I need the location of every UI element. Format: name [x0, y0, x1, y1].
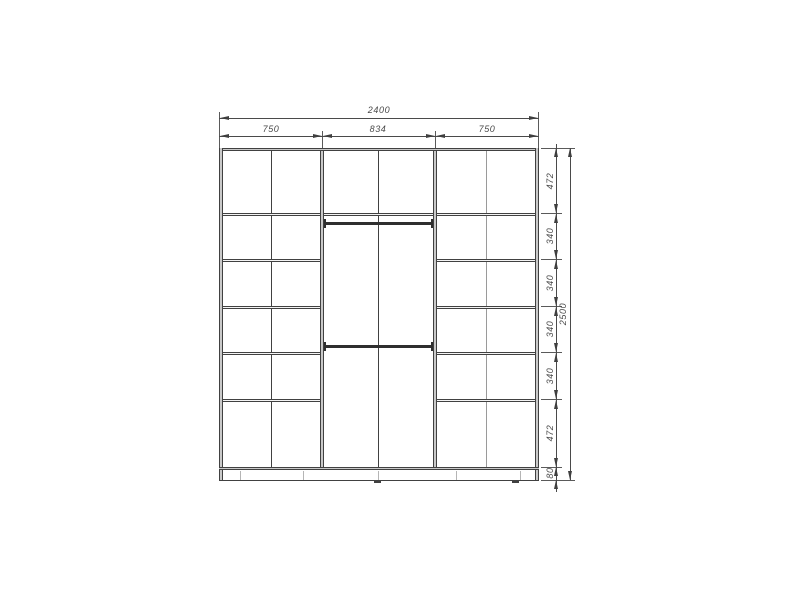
dim-label-height-6: 472 — [545, 425, 555, 442]
partition-left — [320, 151, 324, 467]
extension-line — [541, 399, 562, 400]
plinth-foot-tick — [240, 471, 241, 480]
shelf-left-1 — [223, 213, 320, 216]
dimension-arrow — [554, 214, 558, 223]
shelf-left-2 — [223, 259, 320, 262]
extension-line — [541, 213, 562, 214]
dimension-arrow — [554, 148, 558, 157]
plinth-foot-tick — [378, 471, 379, 480]
dimension-arrow — [554, 480, 558, 489]
extension-line — [541, 480, 575, 481]
hanging-rod-upper-bracket-right — [431, 219, 433, 228]
dimension-line-height-chain — [556, 144, 557, 492]
dimension-arrow — [436, 134, 445, 138]
shelf-right-1 — [437, 213, 535, 216]
dim-label-width-left: 750 — [263, 124, 280, 134]
dimension-arrow — [568, 471, 572, 480]
bottom-panel — [219, 467, 539, 470]
dim-label-height-total: 2500 — [558, 303, 568, 325]
dimension-arrow — [554, 390, 558, 399]
hanging-rod-upper-bracket-left — [324, 219, 326, 228]
divider-left-column — [271, 151, 272, 467]
shelf-middle-top — [324, 213, 433, 216]
hanging-rod-lower — [326, 345, 431, 348]
floor-mark — [512, 481, 519, 483]
dimension-arrow — [426, 134, 435, 138]
dimension-arrow — [554, 458, 558, 467]
dim-label-height-4: 340 — [545, 321, 555, 338]
dimension-line-height-total — [570, 148, 571, 480]
shelf-left-5 — [223, 399, 320, 402]
dimension-arrow — [554, 353, 558, 362]
dimension-arrow — [529, 116, 538, 120]
dim-label-width-middle: 834 — [370, 124, 387, 134]
partition-right — [433, 151, 437, 467]
hanging-rod-lower-bracket-right — [431, 342, 433, 351]
plinth-foot-tick — [303, 471, 304, 480]
dim-label-height-3: 340 — [545, 275, 555, 292]
technical-drawing-sheet: 2400 750 834 750 472 340 340 340 340 472… — [0, 0, 800, 600]
shelf-right-2 — [437, 259, 535, 262]
dimension-line-width-total — [219, 118, 539, 119]
dimension-arrow — [554, 400, 558, 409]
dim-label-height-2: 340 — [545, 228, 555, 245]
side-panel-right — [535, 148, 539, 481]
dimension-arrow — [220, 116, 229, 120]
dimension-arrow — [554, 204, 558, 213]
dim-label-height-5: 340 — [545, 368, 555, 385]
plinth-foot-tick — [456, 471, 457, 480]
dimension-arrow — [554, 250, 558, 259]
hanging-rod-lower-bracket-left — [324, 342, 326, 351]
dimension-arrow — [568, 148, 572, 157]
dimension-arrow — [313, 134, 322, 138]
dimension-arrow — [554, 343, 558, 352]
dimension-arrow — [220, 134, 229, 138]
shelf-right-3 — [437, 306, 535, 309]
divider-middle-column — [378, 151, 379, 467]
dimension-arrow — [529, 134, 538, 138]
shelf-left-4 — [223, 352, 320, 355]
divider-right-column — [486, 151, 487, 467]
top-panel — [219, 148, 539, 151]
shelf-right-4 — [437, 352, 535, 355]
shelf-right-5 — [437, 399, 535, 402]
dimension-arrow — [323, 134, 332, 138]
dimension-arrow — [554, 260, 558, 269]
dimension-line-width-sections — [219, 136, 539, 137]
dim-label-width-total: 2400 — [368, 105, 390, 115]
extension-line — [541, 352, 562, 353]
hanging-rod-upper — [326, 222, 431, 225]
side-panel-left — [219, 148, 223, 481]
dim-label-height-1: 472 — [545, 173, 555, 190]
extension-line — [541, 259, 562, 260]
dim-label-width-right: 750 — [479, 124, 496, 134]
plinth-foot-tick — [520, 471, 521, 480]
shelf-left-3 — [223, 306, 320, 309]
dim-label-height-plinth: 80 — [545, 467, 555, 478]
floor-mark — [374, 481, 381, 483]
